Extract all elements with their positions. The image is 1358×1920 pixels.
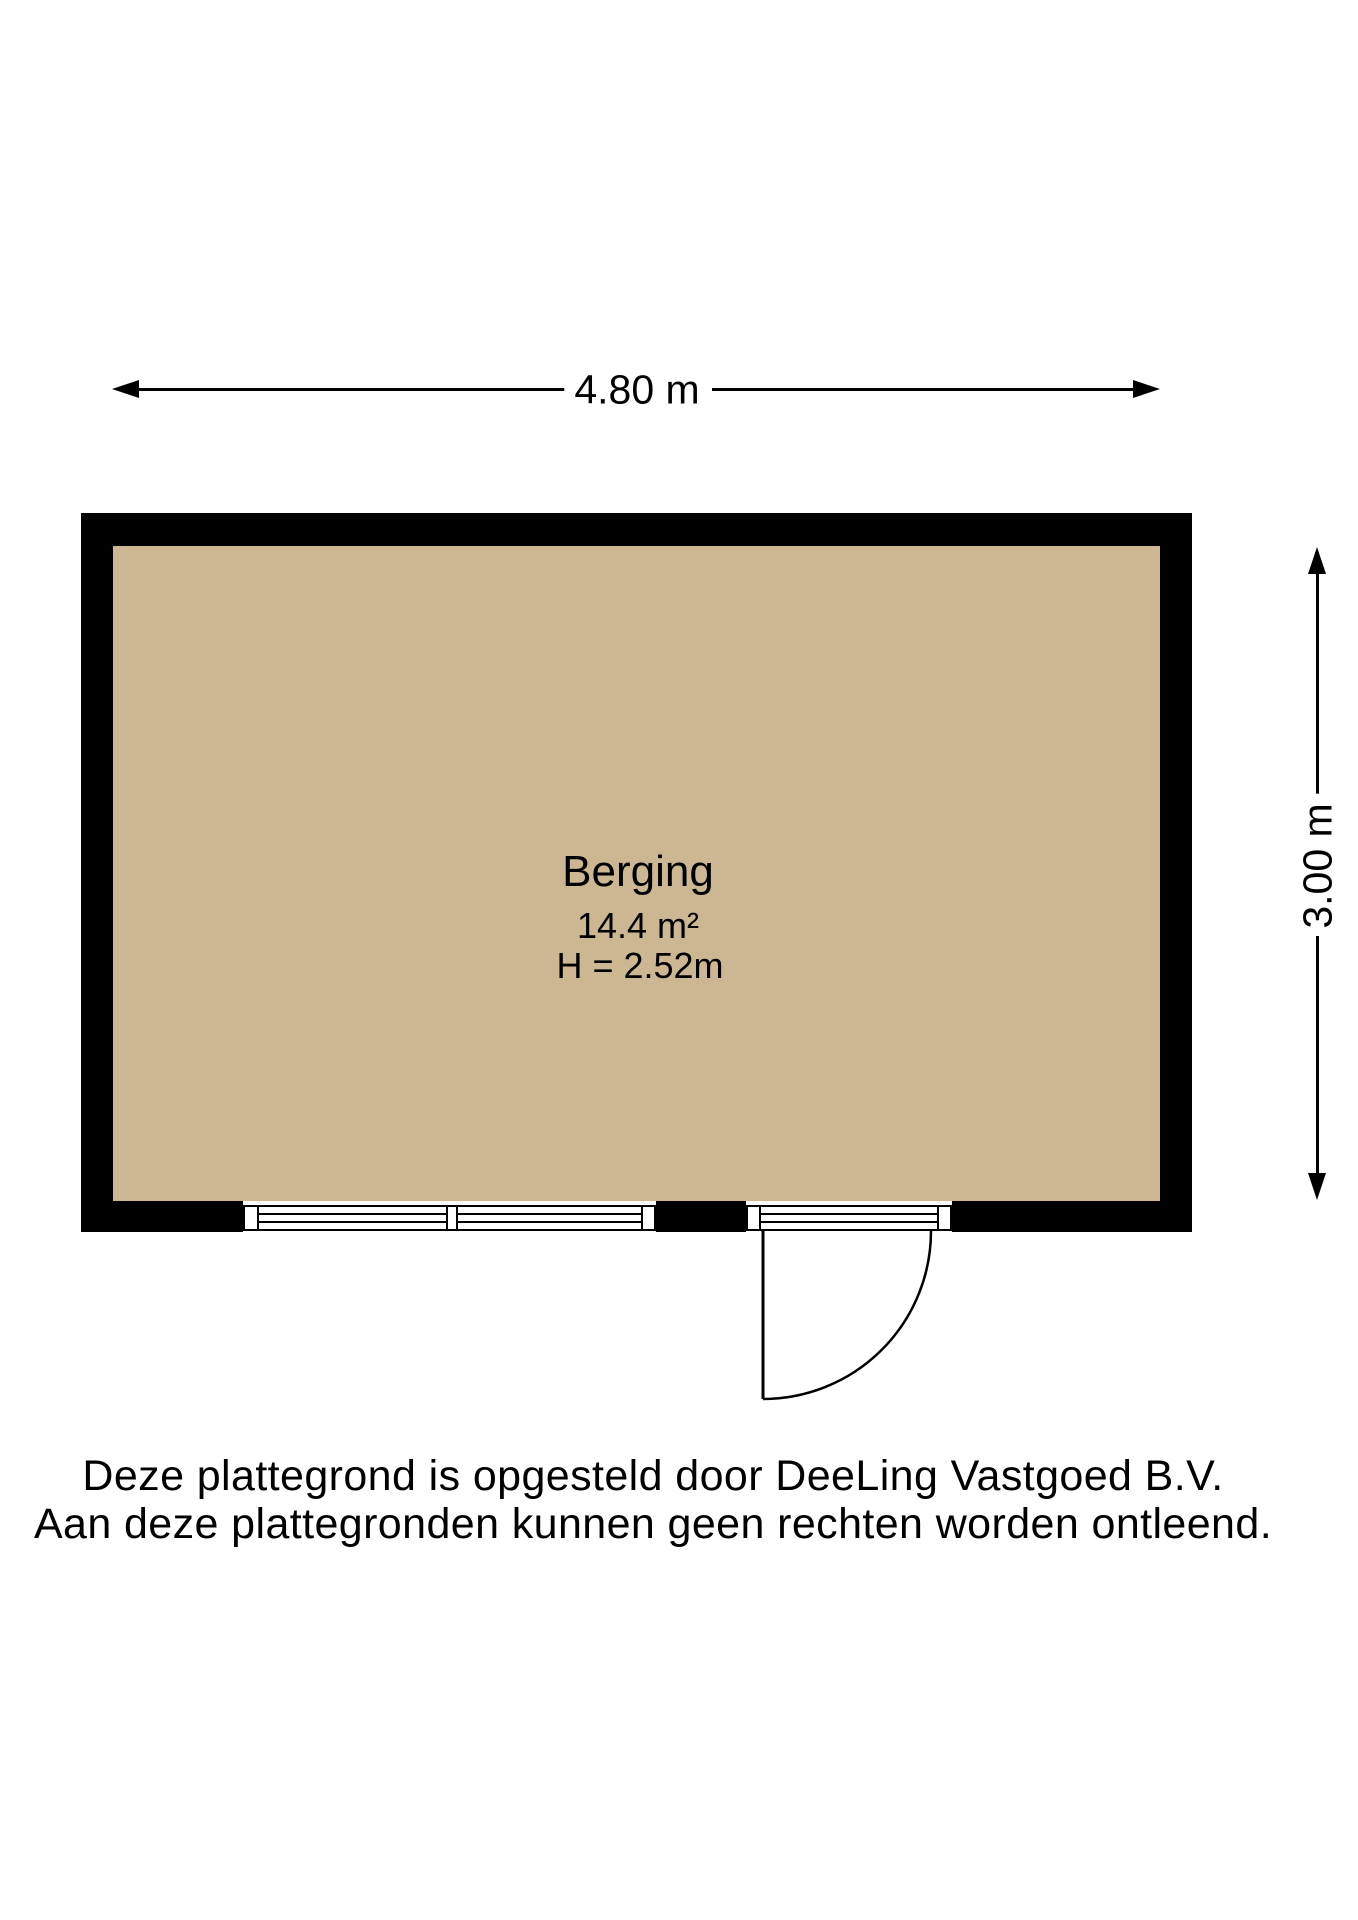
width-dimension-line-right [712,388,1136,391]
window-pane-line [761,1221,937,1223]
width-dimension-label: 4.80 m [564,367,709,414]
room-name-label: Berging [562,847,714,897]
window-pane-line [458,1221,641,1223]
window-pane-line [761,1213,937,1215]
door-glass-icon [761,1205,937,1231]
floorplan-canvas: 4.80 m 3.00 m Berging 14.4 m² H = 2.52m [0,0,1358,1920]
room-area-label: 14.4 m² [577,905,699,947]
height-dimension-line-bottom [1316,936,1319,1178]
height-dimension-label: 3.00 m [1295,793,1342,938]
window-glass-right-icon [458,1205,641,1231]
width-dimension-line-left [134,388,566,391]
height-dimension-line-top [1316,570,1319,795]
window-pane-line [259,1221,446,1223]
dimension-arrow-down-icon [1308,1173,1326,1200]
door-frame-left [746,1205,761,1231]
room-height-label: H = 2.52m [556,945,723,987]
window-pane-line [259,1213,446,1215]
window-frame-right [641,1205,656,1231]
door-swing-icon [761,1231,939,1409]
window-frame-left [243,1205,259,1231]
window-pane-line [458,1213,641,1215]
door-frame-right [937,1205,952,1231]
door-arc [763,1231,931,1399]
window-glass-left-icon [259,1205,446,1231]
dimension-arrow-right-icon [1133,380,1160,398]
window-mullion [446,1205,458,1231]
footer-line-2: Aan deze plattegronden kunnen geen recht… [0,1500,1306,1548]
footer-line-1: Deze plattegrond is opgesteld door DeeLi… [0,1452,1306,1500]
footer-disclaimer: Deze plattegrond is opgesteld door DeeLi… [0,1452,1306,1548]
